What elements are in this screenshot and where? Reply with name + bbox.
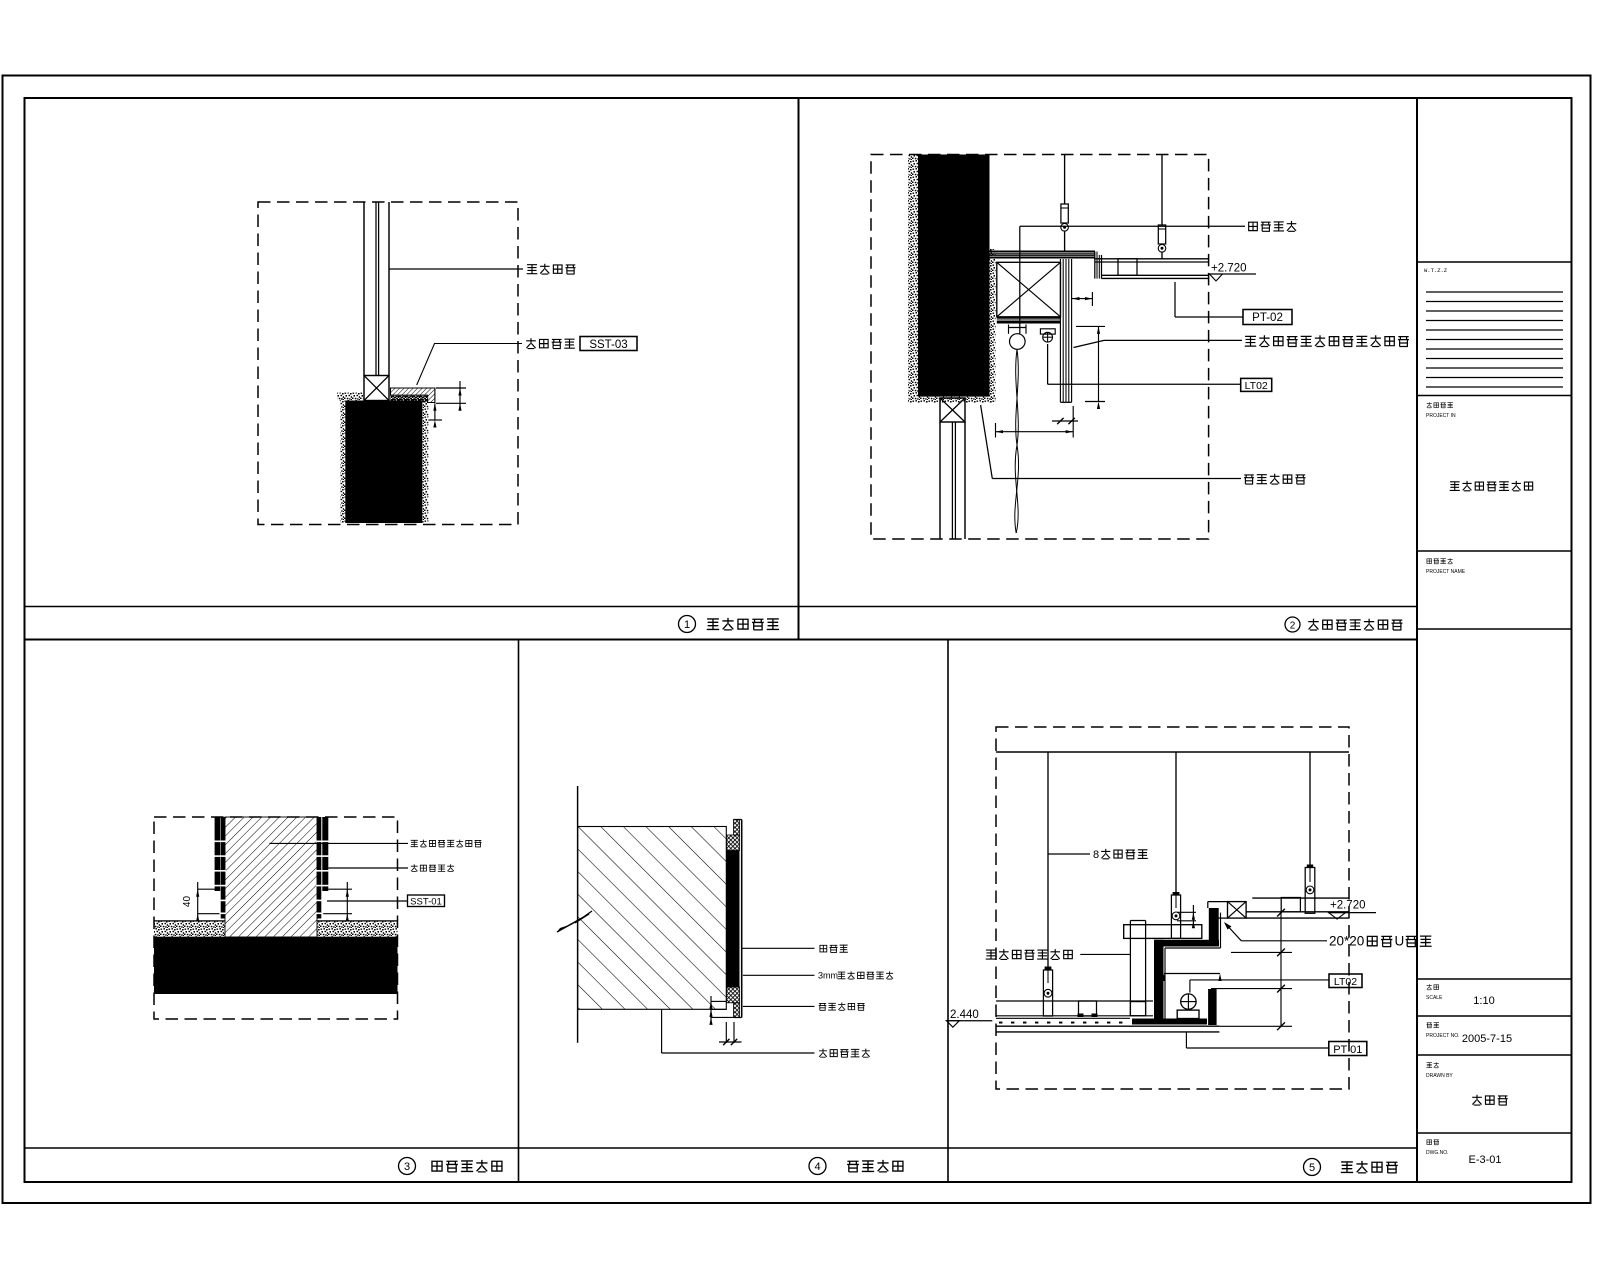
svg-text:DRAWN BY: DRAWN BY xyxy=(1426,1073,1453,1079)
svg-text:SST-03: SST-03 xyxy=(589,339,627,351)
svg-text:PROJECT IN: PROJECT IN xyxy=(1426,413,1456,419)
svg-text:+2.720: +2.720 xyxy=(1330,900,1366,912)
svg-text:2005-7-15: 2005-7-15 xyxy=(1462,1033,1512,1045)
svg-text:SCALE: SCALE xyxy=(1426,995,1443,1001)
svg-text:+2.720: +2.720 xyxy=(1211,263,1247,275)
svg-text:W.T.Z.Z: W.T.Z.Z xyxy=(1424,267,1448,274)
svg-text:LT02: LT02 xyxy=(1334,976,1357,988)
svg-text:E-3-01: E-3-01 xyxy=(1468,1154,1501,1166)
svg-text:PROJECT NO.: PROJECT NO. xyxy=(1426,1033,1460,1039)
svg-text:PROJECT NAME: PROJECT NAME xyxy=(1426,569,1466,575)
svg-text:3mm: 3mm xyxy=(818,970,838,980)
svg-text:8: 8 xyxy=(1093,849,1099,861)
svg-text:SST-01: SST-01 xyxy=(410,896,442,907)
svg-text:1: 1 xyxy=(684,619,690,631)
svg-text:DWG.NO.: DWG.NO. xyxy=(1426,1150,1449,1156)
svg-text:5: 5 xyxy=(1309,1162,1315,1174)
svg-text:PT 01: PT 01 xyxy=(1333,1044,1362,1056)
svg-text:LT02: LT02 xyxy=(1245,380,1268,392)
svg-text:4: 4 xyxy=(814,1161,820,1173)
svg-text:40: 40 xyxy=(182,896,193,908)
svg-text:PT-02: PT-02 xyxy=(1252,312,1283,324)
svg-text:20*20: 20*20 xyxy=(1329,934,1364,949)
svg-text:2: 2 xyxy=(1290,621,1296,632)
svg-text:3: 3 xyxy=(404,1161,410,1173)
svg-text:U: U xyxy=(1395,934,1405,949)
svg-text:1:10: 1:10 xyxy=(1473,995,1494,1007)
svg-text:2.440: 2.440 xyxy=(950,1009,979,1021)
